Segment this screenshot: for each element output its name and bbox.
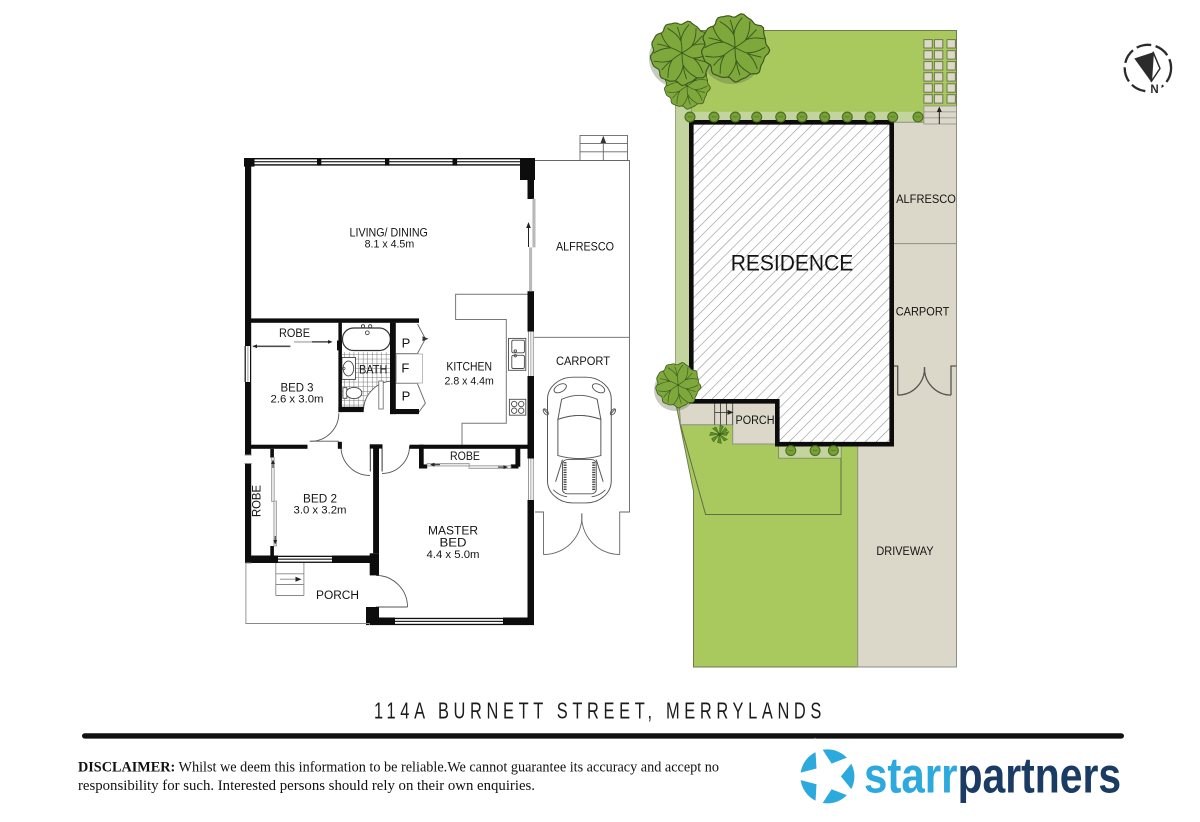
- svg-text:PORCH: PORCH: [316, 588, 359, 602]
- svg-text:BED 2: BED 2: [303, 491, 337, 505]
- svg-text:CARPORT: CARPORT: [556, 354, 610, 368]
- svg-text:KITCHEN: KITCHEN: [446, 359, 492, 373]
- svg-text:ROBE: ROBE: [450, 449, 480, 463]
- svg-text:8.1 x 4.5m: 8.1 x 4.5m: [365, 239, 415, 251]
- svg-text:BATH: BATH: [359, 362, 387, 376]
- svg-text:CARPORT: CARPORT: [896, 305, 950, 319]
- svg-text:114A BURNETT STREET, MERRYLAND: 114A BURNETT STREET, MERRYLANDS: [374, 698, 826, 724]
- svg-text:LIVING/ DINING: LIVING/ DINING: [350, 225, 428, 239]
- svg-text:P: P: [402, 335, 411, 350]
- svg-text:P: P: [402, 389, 411, 404]
- svg-text:PORCH: PORCH: [736, 413, 775, 427]
- svg-text:2.8 x 4.4m: 2.8 x 4.4m: [445, 376, 494, 388]
- svg-text:RESIDENCE: RESIDENCE: [731, 251, 854, 276]
- svg-text:BED: BED: [440, 535, 467, 549]
- svg-text:2.6 x 3.0m: 2.6 x 3.0m: [271, 394, 324, 406]
- svg-text:partners: partners: [958, 748, 1122, 804]
- svg-text:3.0 x 3.2m: 3.0 x 3.2m: [294, 505, 347, 517]
- svg-text:starr: starr: [864, 748, 958, 804]
- svg-text:N: N: [1150, 84, 1158, 96]
- svg-text:responsibility for such. Inter: responsibility for such. Interested pers…: [78, 778, 535, 794]
- svg-text:ROBE: ROBE: [250, 485, 264, 517]
- svg-text:DISCLAIMER: Whilst we deem thi: DISCLAIMER: Whilst we deem this informat…: [78, 760, 719, 776]
- svg-text:DRIVEWAY: DRIVEWAY: [876, 544, 933, 558]
- svg-text:4.4 x 5.0m: 4.4 x 5.0m: [427, 549, 480, 561]
- svg-text:ALFRESCO: ALFRESCO: [896, 192, 956, 206]
- svg-text:BED 3: BED 3: [281, 380, 314, 394]
- svg-text:ROBE: ROBE: [279, 326, 310, 340]
- svg-text:F: F: [401, 360, 409, 375]
- svg-text:ALFRESCO: ALFRESCO: [556, 240, 614, 254]
